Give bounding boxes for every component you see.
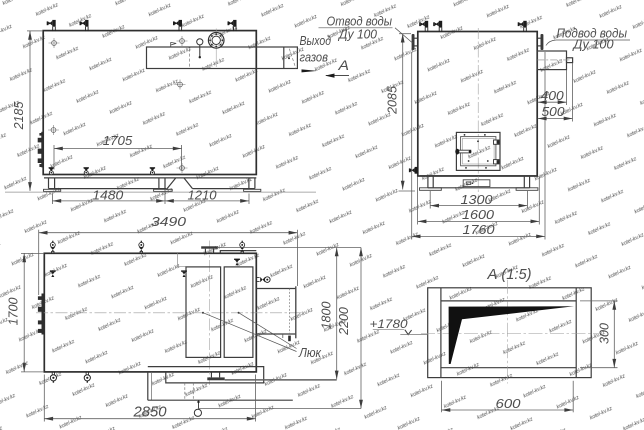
svg-text:1705: 1705 xyxy=(103,133,133,148)
svg-text:1480: 1480 xyxy=(92,188,124,203)
svg-text:3490: 3490 xyxy=(151,215,186,229)
svg-text:2185: 2185 xyxy=(12,102,26,131)
svg-text:1760: 1760 xyxy=(463,222,496,237)
svg-text:1300: 1300 xyxy=(461,192,494,207)
svg-text:1800: 1800 xyxy=(320,302,334,330)
svg-text:600: 600 xyxy=(496,396,522,411)
svg-text:газов: газов xyxy=(300,51,329,65)
svg-text:1600: 1600 xyxy=(462,207,495,222)
svg-text:400: 400 xyxy=(541,88,565,103)
svg-text:500: 500 xyxy=(542,104,566,119)
svg-text:Отвод воды: Отвод воды xyxy=(327,15,393,29)
svg-text:+1780: +1780 xyxy=(370,317,408,331)
svg-text:А: А xyxy=(337,58,349,73)
svg-text:Люк: Люк xyxy=(298,346,322,360)
svg-text:1210: 1210 xyxy=(188,188,218,203)
svg-text:А (1:5): А (1:5) xyxy=(486,267,531,283)
svg-text:300: 300 xyxy=(597,323,611,344)
svg-text:2850: 2850 xyxy=(133,404,168,421)
svg-text:1700: 1700 xyxy=(6,298,20,326)
svg-text:2085: 2085 xyxy=(385,86,399,115)
svg-text:Выход: Выход xyxy=(300,34,332,48)
svg-text:Ду 100: Ду 100 xyxy=(337,28,377,42)
svg-text:2200: 2200 xyxy=(337,307,351,336)
